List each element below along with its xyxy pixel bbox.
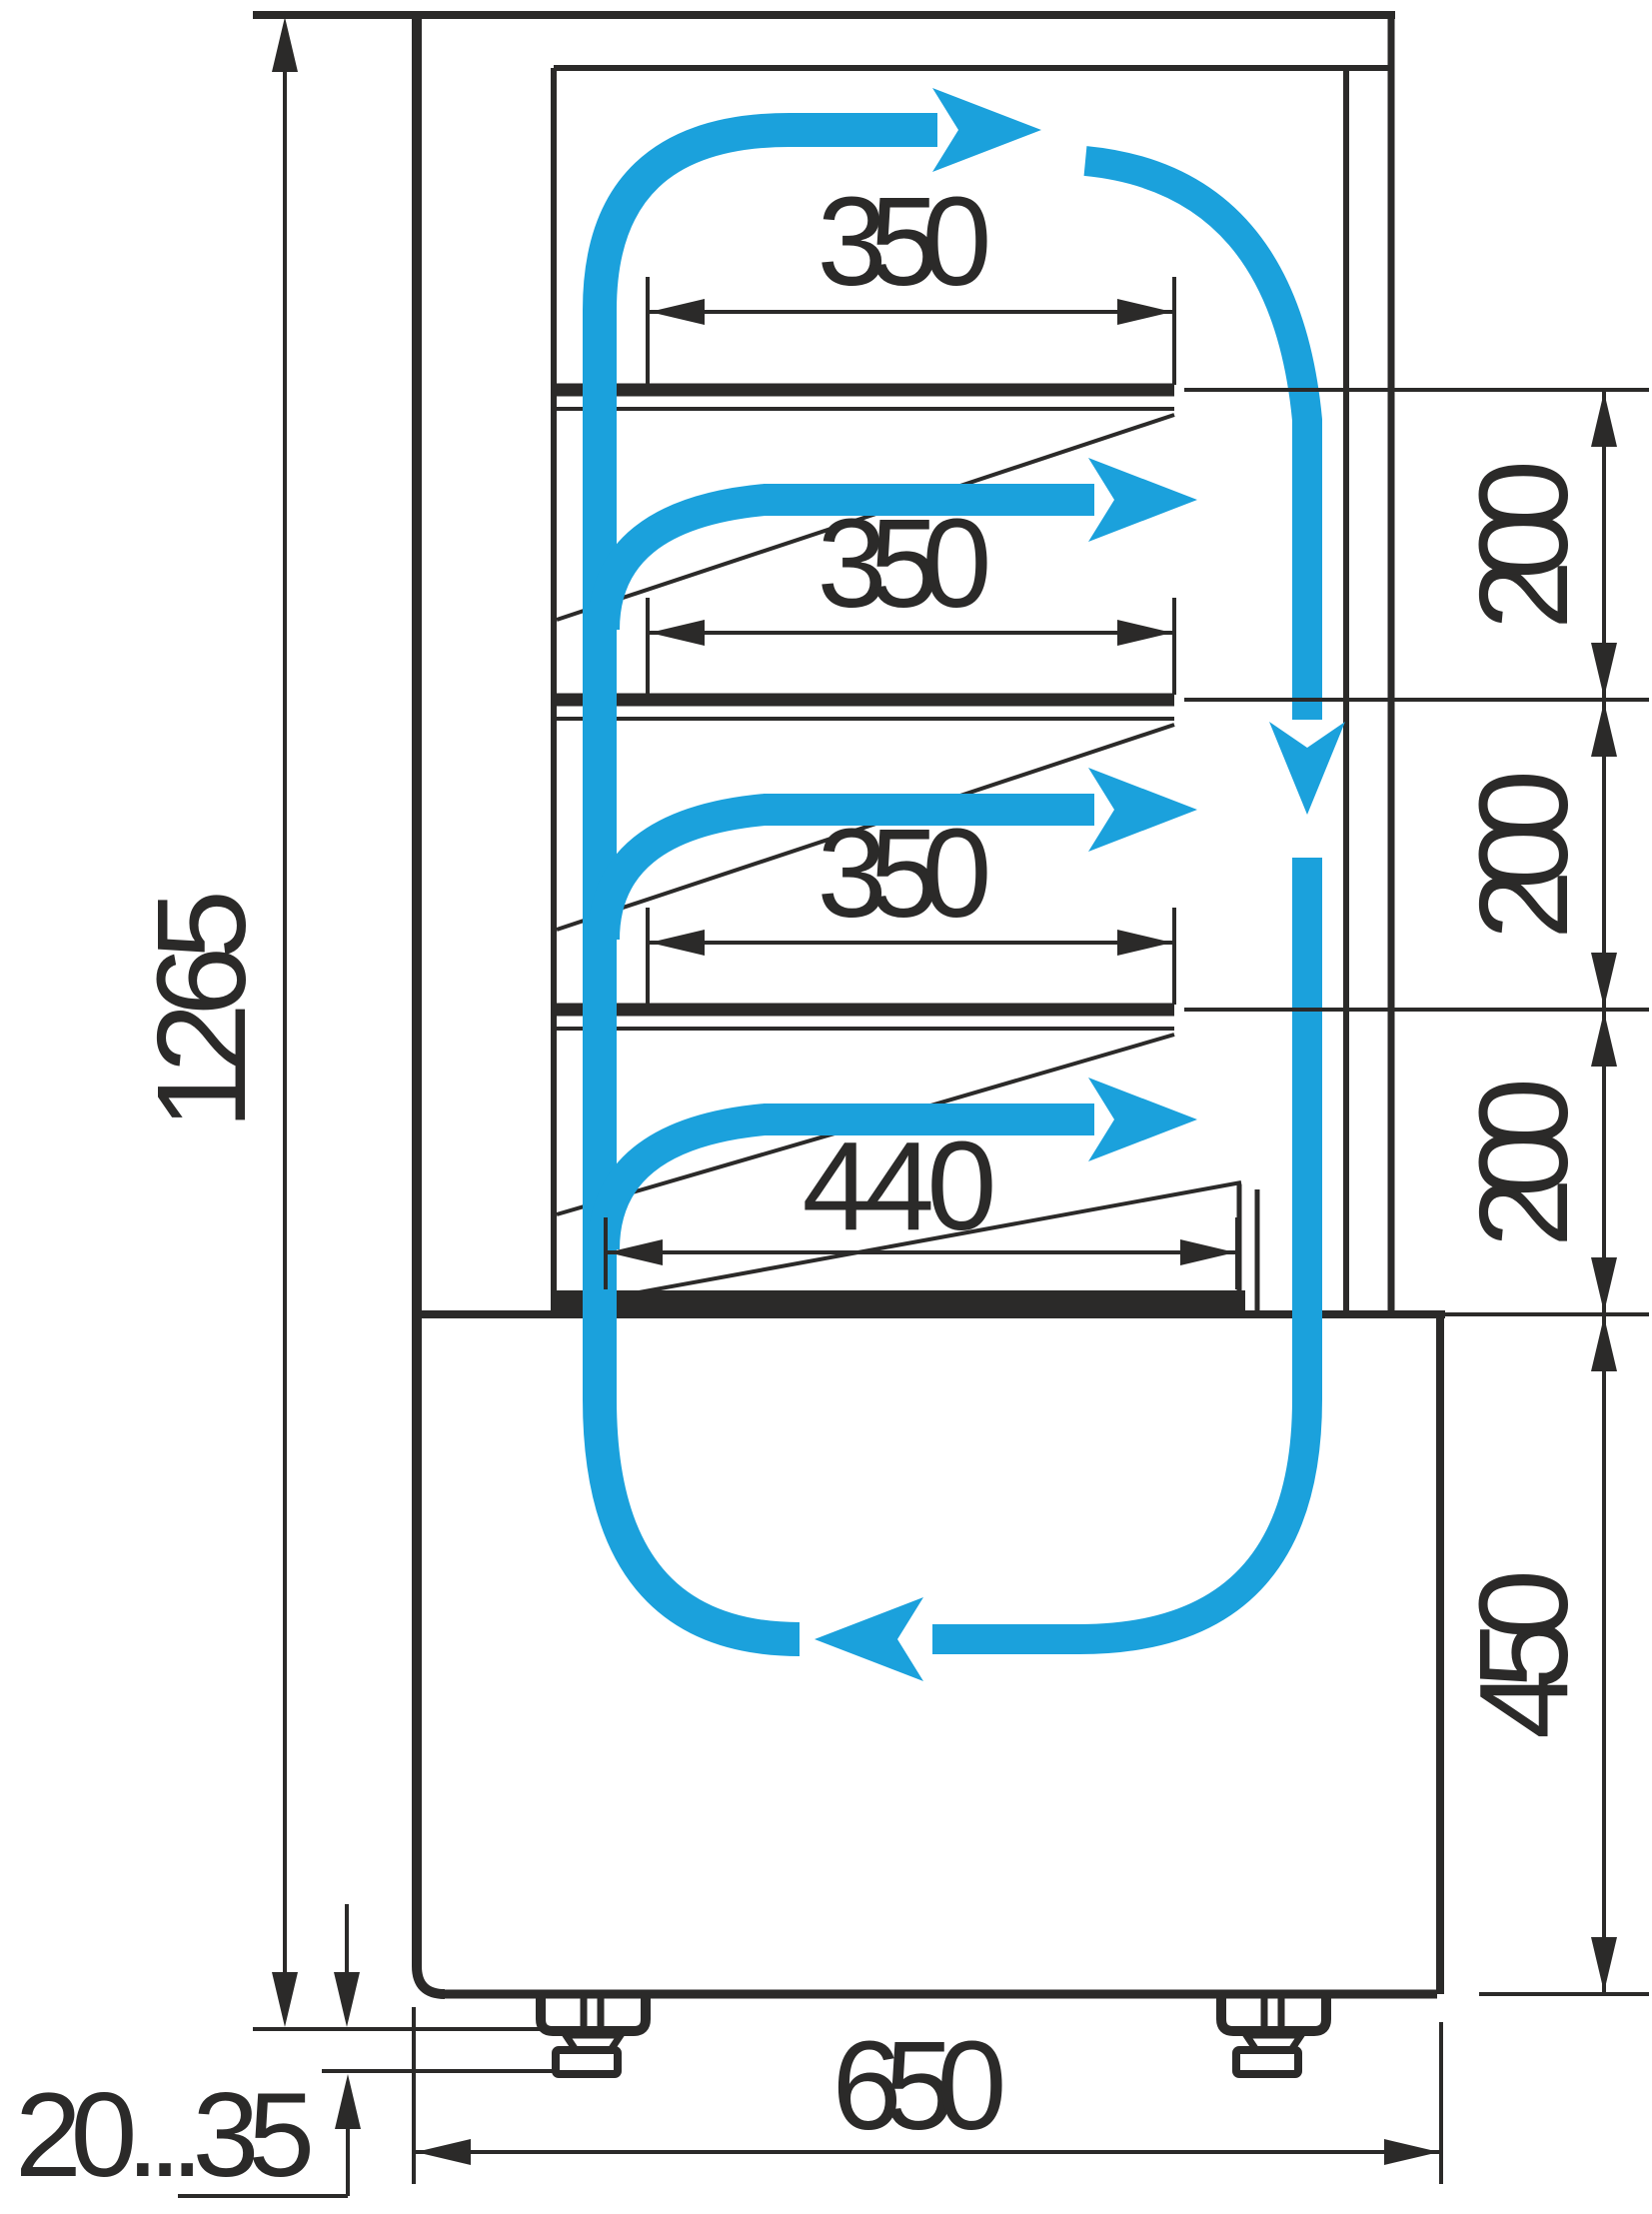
- label-shelf-depth-2: 350: [818, 493, 992, 634]
- label-shelf-depth-1: 350: [818, 171, 992, 312]
- label-gap-2: 200: [1453, 770, 1594, 940]
- technical-drawing-page: 350 350 350 440 1265 200 200 200 450 650…: [0, 0, 1652, 2214]
- label-leg-adjust: 20...35: [15, 2068, 315, 2202]
- right-leg: [1221, 1998, 1326, 2074]
- airflow-return-arrowhead: [815, 1597, 923, 1681]
- airflow-down-arrowhead: [1269, 722, 1345, 815]
- shelf-1: [556, 390, 1174, 409]
- shelf-2: [556, 700, 1174, 719]
- label-gap-3: 200: [1453, 1078, 1594, 1247]
- label-bottom-shelf-depth: 440: [803, 1115, 997, 1256]
- label-total-height: 1265: [131, 890, 272, 1129]
- dimension-total-height: [272, 17, 298, 2027]
- label-shelf-depth-3: 350: [818, 803, 992, 944]
- label-base-height: 450: [1453, 1569, 1594, 1739]
- dimension-labels: 350 350 350 440 1265 200 200 200 450 650…: [15, 171, 1594, 2202]
- label-gap-1: 200: [1453, 460, 1594, 630]
- shelf-3: [556, 1010, 1174, 1029]
- airflow-top-arrowhead: [932, 88, 1041, 172]
- left-wall: [417, 15, 445, 1994]
- label-overall-depth: 650: [832, 2015, 1007, 2156]
- left-leg: [541, 1998, 646, 2074]
- cabinet-structure: [253, 15, 1445, 2074]
- display-case-section-drawing: 350 350 350 440 1265 200 200 200 450 650…: [0, 0, 1652, 2214]
